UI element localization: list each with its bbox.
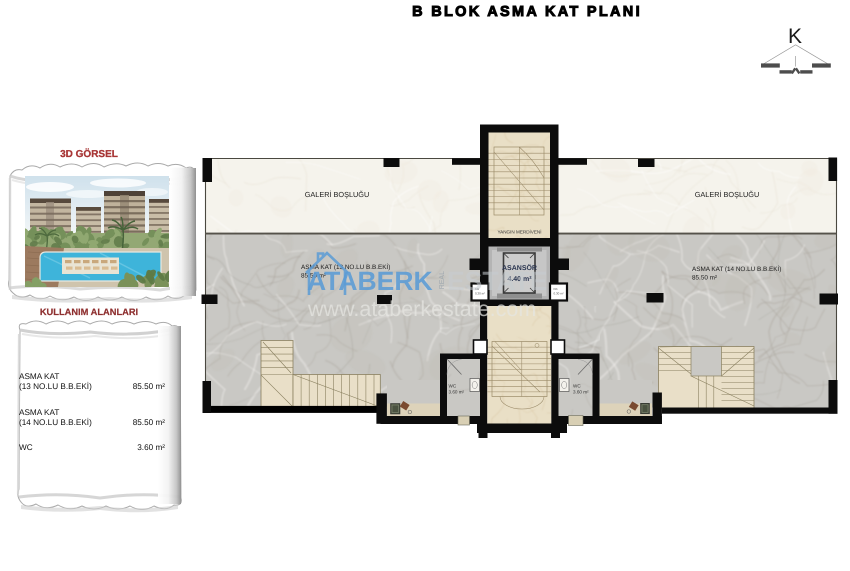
svg-text:ASMA KAT: ASMA KAT xyxy=(19,372,59,381)
svg-text:3.60 m²: 3.60 m² xyxy=(449,390,465,395)
svg-text:85.50 m²: 85.50 m² xyxy=(692,275,717,282)
svg-text:KULLANIM ALANLARI: KULLANIM ALANLARI xyxy=(40,307,138,317)
svg-text:K: K xyxy=(788,25,802,48)
svg-text:GALERİ BOŞLUĞU: GALERİ BOŞLUĞU xyxy=(305,190,369,199)
svg-text:GALERİ BOŞLUĞU: GALERİ BOŞLUĞU xyxy=(695,190,759,199)
svg-text:85.50 m²: 85.50 m² xyxy=(133,418,166,427)
svg-text:WC: WC xyxy=(573,384,581,389)
svg-text:ESTATE: ESTATE xyxy=(447,266,548,296)
svg-text:WC: WC xyxy=(19,443,33,452)
svg-text:www.ataberkestate.com: www.ataberkestate.com xyxy=(307,297,536,321)
svg-text:REAL: REAL xyxy=(439,271,446,289)
svg-text:YANGIN MERDİVENİ: YANGIN MERDİVENİ xyxy=(497,230,541,235)
svg-text:B BLOK ASMA KAT PLANI: B BLOK ASMA KAT PLANI xyxy=(412,4,642,20)
svg-text:(14 NO.LU B.B.EKİ): (14 NO.LU B.B.EKİ) xyxy=(19,417,92,427)
svg-text:ASMA KAT: ASMA KAT xyxy=(19,408,59,417)
svg-text:3.60 m²: 3.60 m² xyxy=(573,390,589,395)
svg-text:3D GÖRSEL: 3D GÖRSEL xyxy=(60,148,118,160)
svg-text:WC: WC xyxy=(449,384,457,389)
svg-text:(13 NO.LU B.B.EKİ): (13 NO.LU B.B.EKİ) xyxy=(19,381,92,391)
svg-text:ASMA KAT (14 NO.LU B.B.EKİ): ASMA KAT (14 NO.LU B.B.EKİ) xyxy=(692,265,781,273)
svg-text:0.30 m²: 0.30 m² xyxy=(554,292,564,296)
svg-text:85.50 m²: 85.50 m² xyxy=(133,382,166,391)
svg-text:ATABERK: ATABERK xyxy=(307,266,433,296)
svg-text:KB: KB xyxy=(554,287,558,291)
svg-text:3.60 m²: 3.60 m² xyxy=(137,443,165,452)
